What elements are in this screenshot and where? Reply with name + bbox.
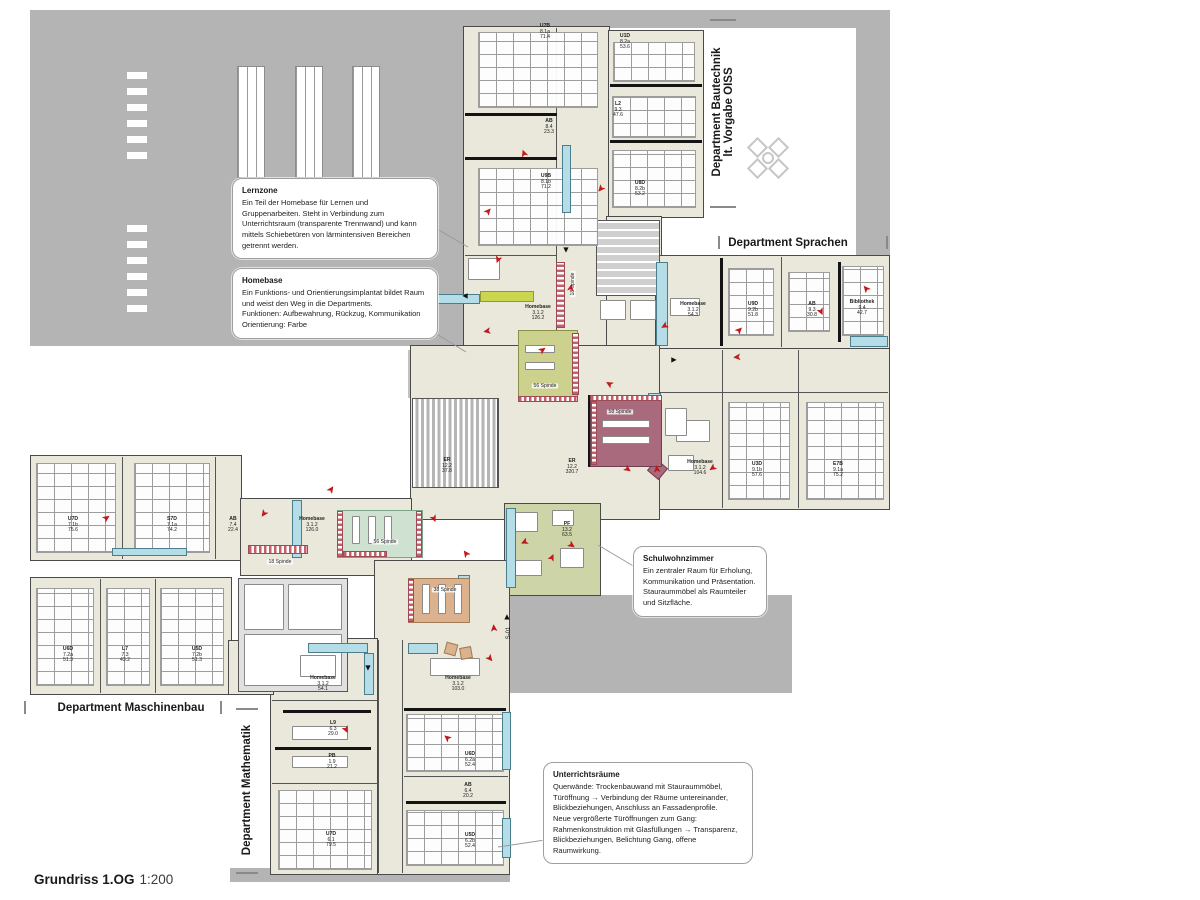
wall bbox=[465, 255, 556, 256]
tick bbox=[886, 236, 888, 249]
tick bbox=[236, 708, 258, 710]
spinde-checker bbox=[416, 511, 422, 557]
elevator bbox=[630, 300, 656, 320]
desk-cluster bbox=[612, 96, 696, 138]
callout-title: Unterrichtsräume bbox=[553, 770, 743, 779]
locker-strip bbox=[112, 548, 187, 556]
wall bbox=[283, 710, 371, 713]
floorplan-canvas: U7B8.1a71.4U1D8.2a53.6AB8.423.3L29.347.6… bbox=[0, 0, 1200, 900]
wall bbox=[610, 84, 702, 87]
callout-title: Schulwohnzimmer bbox=[643, 554, 757, 563]
callout-body: Ein Teil der Homebase für Lernen und Gru… bbox=[242, 198, 428, 251]
callout-schulwohnzimmer: Schulwohnzimmer Ein zentraler Raum für E… bbox=[633, 546, 767, 617]
wall bbox=[272, 700, 378, 701]
wall bbox=[498, 398, 499, 488]
furniture bbox=[514, 560, 542, 576]
spinde-checker bbox=[591, 401, 597, 465]
furniture bbox=[602, 420, 650, 428]
tick bbox=[710, 19, 736, 21]
spinde-checker bbox=[248, 545, 308, 554]
furniture bbox=[454, 584, 462, 614]
wall bbox=[660, 392, 888, 393]
desk-cluster bbox=[134, 463, 210, 553]
lernzone-bench bbox=[480, 291, 534, 302]
roof-dashes bbox=[127, 72, 147, 168]
locker-strip bbox=[308, 643, 368, 653]
desk-cluster bbox=[728, 402, 790, 500]
callout-lernzone: Lernzone Ein Teil der Homebase für Lerne… bbox=[232, 178, 438, 259]
wc-room bbox=[288, 584, 342, 630]
desk-cluster bbox=[36, 463, 116, 553]
desk-cluster bbox=[842, 266, 884, 336]
furniture bbox=[525, 362, 555, 370]
spinde-checker bbox=[590, 395, 662, 401]
furniture bbox=[292, 756, 348, 768]
desk-cluster bbox=[728, 268, 774, 336]
wall bbox=[378, 640, 379, 873]
locker-strip bbox=[850, 336, 888, 347]
wall bbox=[215, 457, 216, 559]
furniture bbox=[422, 584, 430, 614]
desk-cluster bbox=[36, 588, 94, 686]
desk-cluster bbox=[278, 790, 372, 870]
wall bbox=[100, 579, 101, 693]
wall bbox=[720, 258, 723, 346]
furniture bbox=[525, 345, 555, 353]
wall bbox=[404, 708, 506, 711]
dept-label-bautechnik: Department Bautechnik lt. Vorgabe OISS bbox=[711, 7, 735, 217]
desk-cluster bbox=[478, 32, 598, 108]
direction-arrow-icon: ➤ bbox=[325, 484, 338, 497]
tick bbox=[718, 236, 720, 249]
spinde-checker bbox=[343, 551, 387, 557]
spinde-room-mauve bbox=[590, 395, 662, 467]
wall bbox=[781, 257, 782, 347]
furniture bbox=[292, 726, 348, 740]
tick bbox=[236, 872, 258, 874]
cross-ornament bbox=[748, 138, 788, 178]
locker-strip bbox=[364, 653, 374, 695]
wall bbox=[610, 140, 702, 143]
wall bbox=[406, 801, 506, 804]
locker-strip bbox=[408, 643, 438, 654]
locker-strip bbox=[562, 145, 571, 213]
wall bbox=[465, 157, 557, 160]
wall bbox=[122, 457, 123, 559]
desk-cluster bbox=[613, 42, 695, 82]
locker-strip bbox=[502, 712, 511, 770]
desk-cluster bbox=[788, 272, 830, 332]
tick bbox=[710, 206, 736, 208]
spinde-checker bbox=[572, 333, 579, 395]
desk-cluster bbox=[406, 714, 504, 772]
wall bbox=[272, 783, 378, 784]
roof-louver bbox=[237, 66, 265, 178]
roof-louver bbox=[295, 66, 323, 178]
callout-body: Querwände: Trockenbauwand mit Stauraummö… bbox=[553, 782, 743, 856]
desk-cluster bbox=[478, 168, 598, 246]
desk-cluster bbox=[106, 588, 150, 686]
callout-body: Ein zentraler Raum für Erholung, Kommuni… bbox=[643, 566, 757, 609]
spinde-checker bbox=[408, 579, 414, 622]
locker-checker bbox=[556, 262, 565, 328]
furniture bbox=[352, 516, 360, 544]
spinde-checker bbox=[518, 396, 578, 402]
roof-louver bbox=[352, 66, 380, 178]
drawing-title: Grundriss 1.OG1:200 bbox=[34, 872, 173, 887]
callout-unterrichtsraeume: Unterrichtsräume Querwände: Trockenbauwa… bbox=[543, 762, 753, 864]
furniture bbox=[668, 455, 694, 471]
mass-right-column bbox=[856, 28, 890, 256]
locker-strip bbox=[656, 262, 668, 346]
furniture bbox=[430, 658, 480, 676]
furniture bbox=[560, 548, 584, 568]
stair-core-hub bbox=[412, 398, 498, 488]
dept-label-mathematik: Department Mathematik bbox=[241, 705, 253, 875]
furniture bbox=[602, 436, 650, 444]
wall bbox=[798, 350, 799, 508]
desk-cluster bbox=[612, 150, 696, 208]
wall bbox=[155, 579, 156, 693]
desk-cluster bbox=[806, 402, 884, 500]
roof-dashes bbox=[127, 225, 147, 321]
wall bbox=[404, 776, 508, 777]
wall bbox=[838, 262, 841, 342]
wc-room bbox=[244, 584, 284, 630]
furniture bbox=[552, 510, 574, 526]
furniture bbox=[468, 258, 500, 280]
callout-homebase: Homebase Ein Funktions- und Orientierung… bbox=[232, 268, 438, 339]
wall bbox=[465, 113, 557, 116]
callout-body: Ein Funktions- und Orientierungsimplanta… bbox=[242, 288, 428, 331]
stair-core-north bbox=[596, 220, 660, 296]
entrance-label-s01: S-01 bbox=[506, 627, 512, 640]
wall bbox=[402, 640, 403, 873]
elevator bbox=[600, 300, 626, 320]
furniture bbox=[670, 298, 700, 316]
wall bbox=[275, 747, 371, 750]
dept-label-maschinenbau: Department Maschinenbau bbox=[58, 702, 205, 714]
tick bbox=[220, 701, 222, 714]
desk-cluster bbox=[160, 588, 224, 686]
locker-strip bbox=[506, 508, 516, 588]
furniture bbox=[368, 516, 376, 544]
title-main: Grundriss 1.OG bbox=[34, 872, 135, 887]
dept-label-sprachen: Department Sprachen bbox=[728, 237, 848, 249]
callout-title: Homebase bbox=[242, 276, 428, 285]
direction-arrow-icon: ➤ bbox=[460, 547, 473, 560]
wall bbox=[722, 350, 723, 508]
furniture bbox=[384, 516, 392, 544]
furniture bbox=[438, 584, 446, 614]
title-scale: 1:200 bbox=[140, 872, 174, 887]
desk-cluster bbox=[406, 810, 504, 866]
furniture bbox=[300, 655, 336, 677]
furniture bbox=[665, 408, 687, 436]
callout-title: Lernzone bbox=[242, 186, 428, 195]
locker-strip bbox=[502, 818, 511, 858]
storage-cube bbox=[459, 646, 473, 660]
tick bbox=[24, 701, 26, 714]
